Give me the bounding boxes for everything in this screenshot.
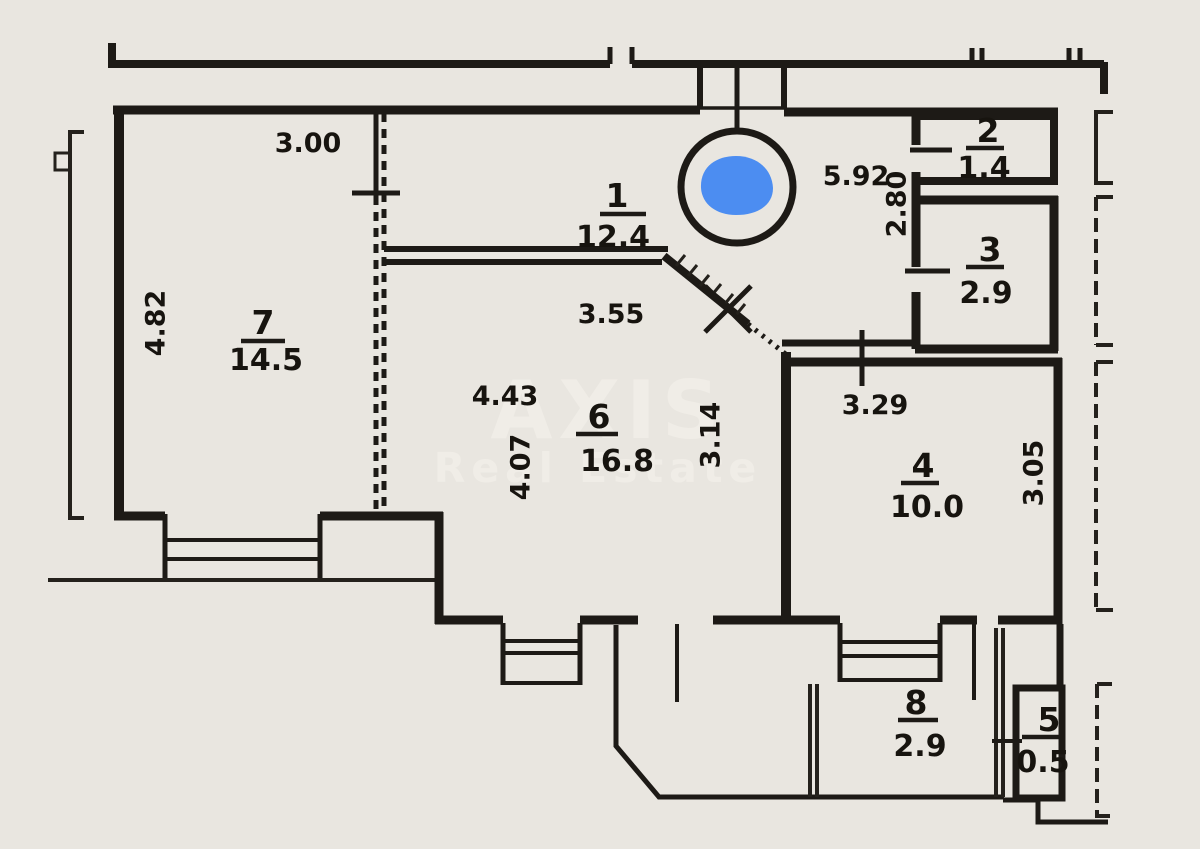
dimension-4-82: 4.82 <box>141 290 172 357</box>
room-4-area: 10.0 <box>890 490 964 525</box>
floor-plan-drawing: AXIS Real Estate <box>0 0 1200 849</box>
room-7-area: 14.5 <box>229 343 303 378</box>
room-4-number: 4 <box>912 446 935 485</box>
dimension-3-55: 3.55 <box>578 299 645 330</box>
dimension-5-92: 5.92 <box>823 161 890 192</box>
dimension-3-05: 3.05 <box>1019 440 1050 507</box>
room-7-number: 7 <box>252 303 275 342</box>
room-6-area: 16.8 <box>580 444 654 479</box>
room-5-area: 0.5 <box>1016 745 1069 780</box>
dimension-3-14: 3.14 <box>696 402 727 469</box>
room-6-number: 6 <box>588 397 611 436</box>
room-2-number: 2 <box>977 111 1000 150</box>
room-3-area: 2.9 <box>959 276 1012 311</box>
room-1-number: 1 <box>606 176 629 215</box>
room-1-area: 12.4 <box>576 220 650 255</box>
dimension-4-43: 4.43 <box>472 381 539 412</box>
dimension-4-07: 4.07 <box>506 434 537 501</box>
dimension-3-00: 3.00 <box>275 128 342 159</box>
floor-plan-page: AXIS Real Estate <box>0 0 1200 849</box>
dimension-2-80: 2.80 <box>882 171 913 238</box>
room-3-number: 3 <box>979 230 1002 269</box>
room-2-area: 1.4 <box>957 151 1010 186</box>
dimension-3-29: 3.29 <box>842 390 909 421</box>
room-8-area: 2.9 <box>893 729 946 764</box>
room-5-number: 5 <box>1038 700 1061 739</box>
room-8-number: 8 <box>905 683 928 722</box>
